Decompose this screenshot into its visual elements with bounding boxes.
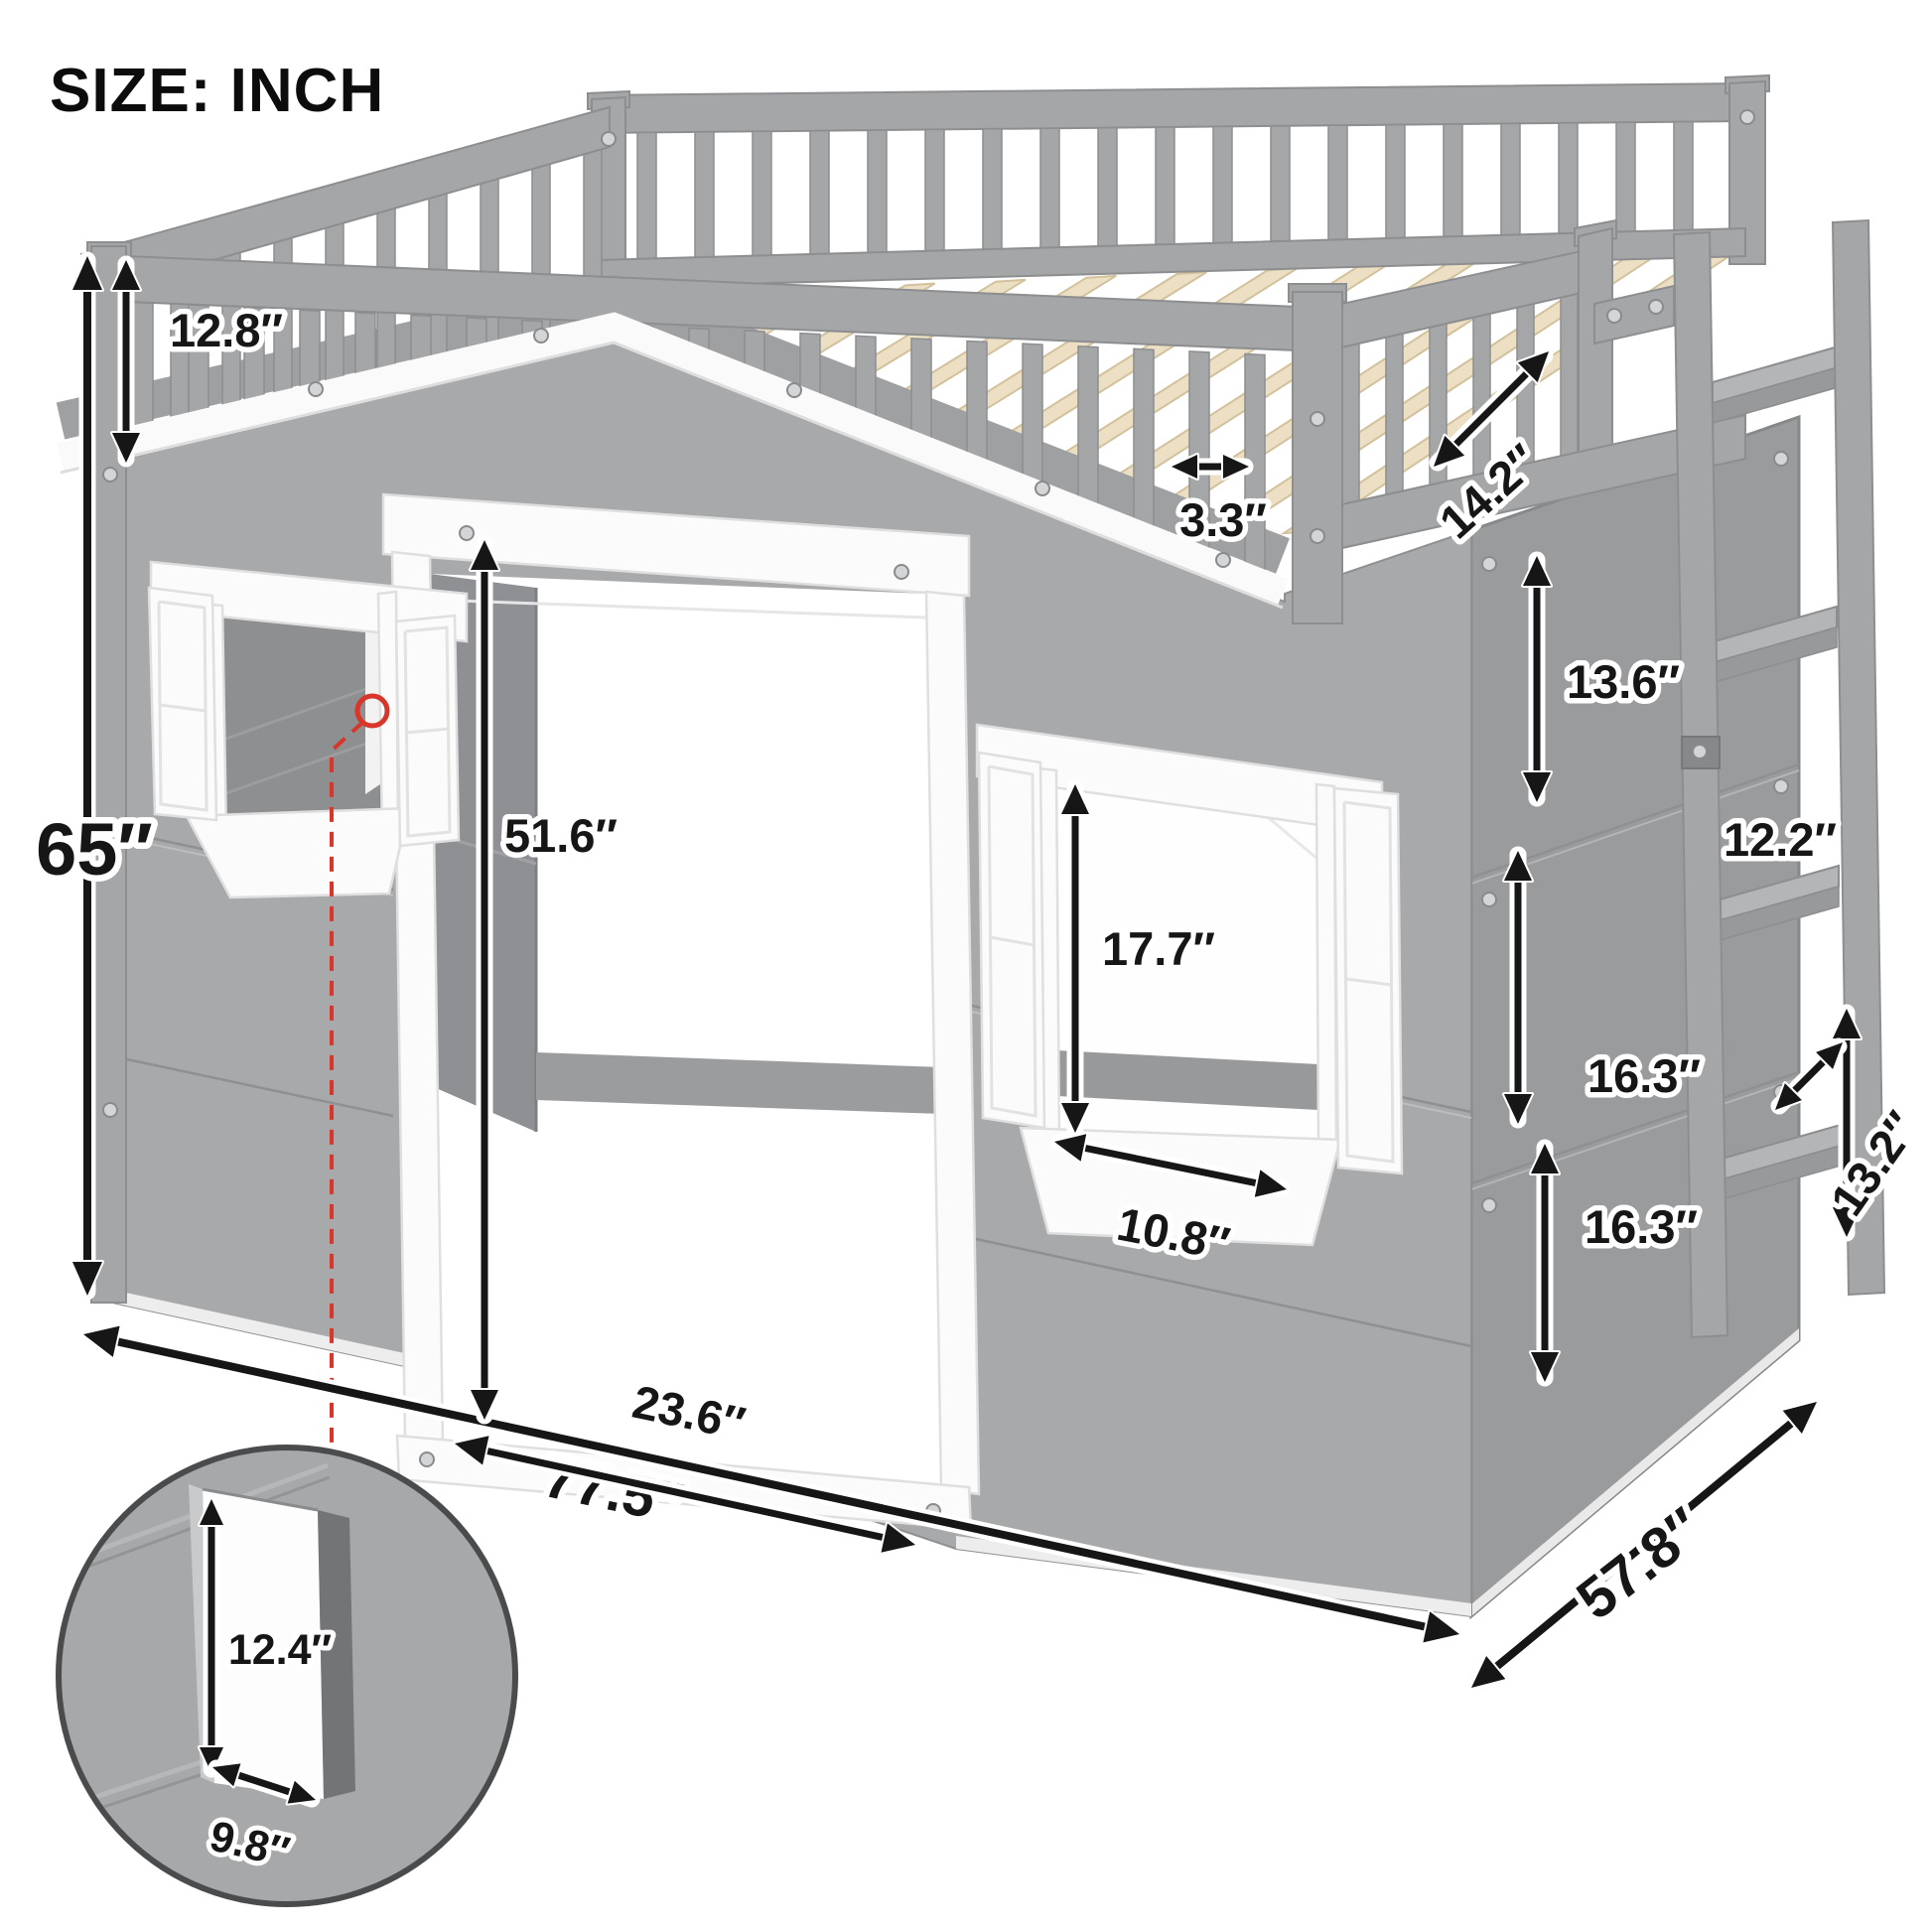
dim-label: 17.7″ xyxy=(1102,922,1215,975)
baluster xyxy=(983,129,1002,252)
window-shutter-right xyxy=(396,616,459,846)
dimension-slat-spacing: 3.3″ xyxy=(1172,455,1267,546)
screw xyxy=(1482,557,1496,571)
baluster xyxy=(1023,344,1042,486)
baluster xyxy=(925,129,944,253)
screw xyxy=(103,1103,117,1117)
baluster xyxy=(868,130,887,254)
screw xyxy=(602,132,616,146)
dim-label: 12.8″ xyxy=(170,304,283,356)
screw xyxy=(1482,1198,1496,1212)
baluster xyxy=(695,132,714,259)
screw xyxy=(309,382,323,396)
screw xyxy=(1035,482,1049,495)
screw xyxy=(1774,452,1788,466)
screw xyxy=(787,383,801,397)
screw xyxy=(534,329,548,343)
screw xyxy=(1311,529,1324,543)
baluster xyxy=(1156,127,1174,246)
dim-label: 3.3″ xyxy=(1179,493,1267,546)
baluster xyxy=(1040,128,1059,250)
window-frame xyxy=(1316,784,1336,1144)
dim-label: 51.6″ xyxy=(504,809,618,862)
screw xyxy=(1216,553,1230,567)
screw xyxy=(460,526,474,540)
window-shutter-left xyxy=(979,753,1044,1128)
baluster xyxy=(1616,122,1635,234)
baluster xyxy=(1328,125,1347,242)
baluster xyxy=(1501,123,1520,237)
dim-label: 16.3″ xyxy=(1585,1200,1698,1253)
dim-label: 12.2″ xyxy=(1724,813,1837,866)
window-shutter-right xyxy=(1334,788,1402,1173)
baluster xyxy=(810,131,829,256)
baluster xyxy=(856,336,876,420)
dim-label: 65″ xyxy=(36,808,153,891)
baluster xyxy=(1213,126,1232,245)
baluster xyxy=(1098,128,1117,249)
baluster xyxy=(1386,125,1405,241)
dim-label: 16.3″ xyxy=(1587,1049,1701,1102)
baluster xyxy=(967,342,987,466)
window-shutter-left xyxy=(149,588,216,820)
baluster xyxy=(1386,332,1403,516)
dimension-diagram: 12.8″ 65″ 14.2″ 3.3″ 13.6″ 12.2″ xyxy=(0,0,1932,1932)
screw xyxy=(420,1452,434,1466)
baluster xyxy=(1674,122,1693,233)
baluster xyxy=(133,302,153,437)
bed-diagram-canvas: 12.8″ 65″ 14.2″ 3.3″ 13.6″ 12.2″ xyxy=(0,0,1932,1932)
page-title: SIZE: INCH xyxy=(50,57,384,125)
screw xyxy=(1774,779,1788,793)
screw xyxy=(895,565,908,579)
baluster xyxy=(1559,123,1578,236)
screw xyxy=(1311,412,1324,426)
baluster xyxy=(1561,294,1578,471)
dim-label: 13.6″ xyxy=(1567,655,1680,708)
baluster xyxy=(1271,126,1290,244)
screw xyxy=(1693,745,1707,759)
baluster xyxy=(1134,348,1154,530)
baluster xyxy=(1078,346,1098,509)
baluster xyxy=(1444,124,1462,238)
baluster xyxy=(1430,323,1447,505)
dim-label: 12.4″ xyxy=(228,1626,332,1674)
screw xyxy=(1482,893,1496,906)
baluster xyxy=(1342,342,1359,527)
baluster xyxy=(911,339,931,443)
door xyxy=(383,494,979,1529)
screw xyxy=(103,468,117,482)
screw xyxy=(1649,300,1663,314)
screw xyxy=(1607,309,1621,323)
screw xyxy=(1740,110,1754,124)
baluster xyxy=(637,132,656,260)
baluster xyxy=(753,131,771,257)
